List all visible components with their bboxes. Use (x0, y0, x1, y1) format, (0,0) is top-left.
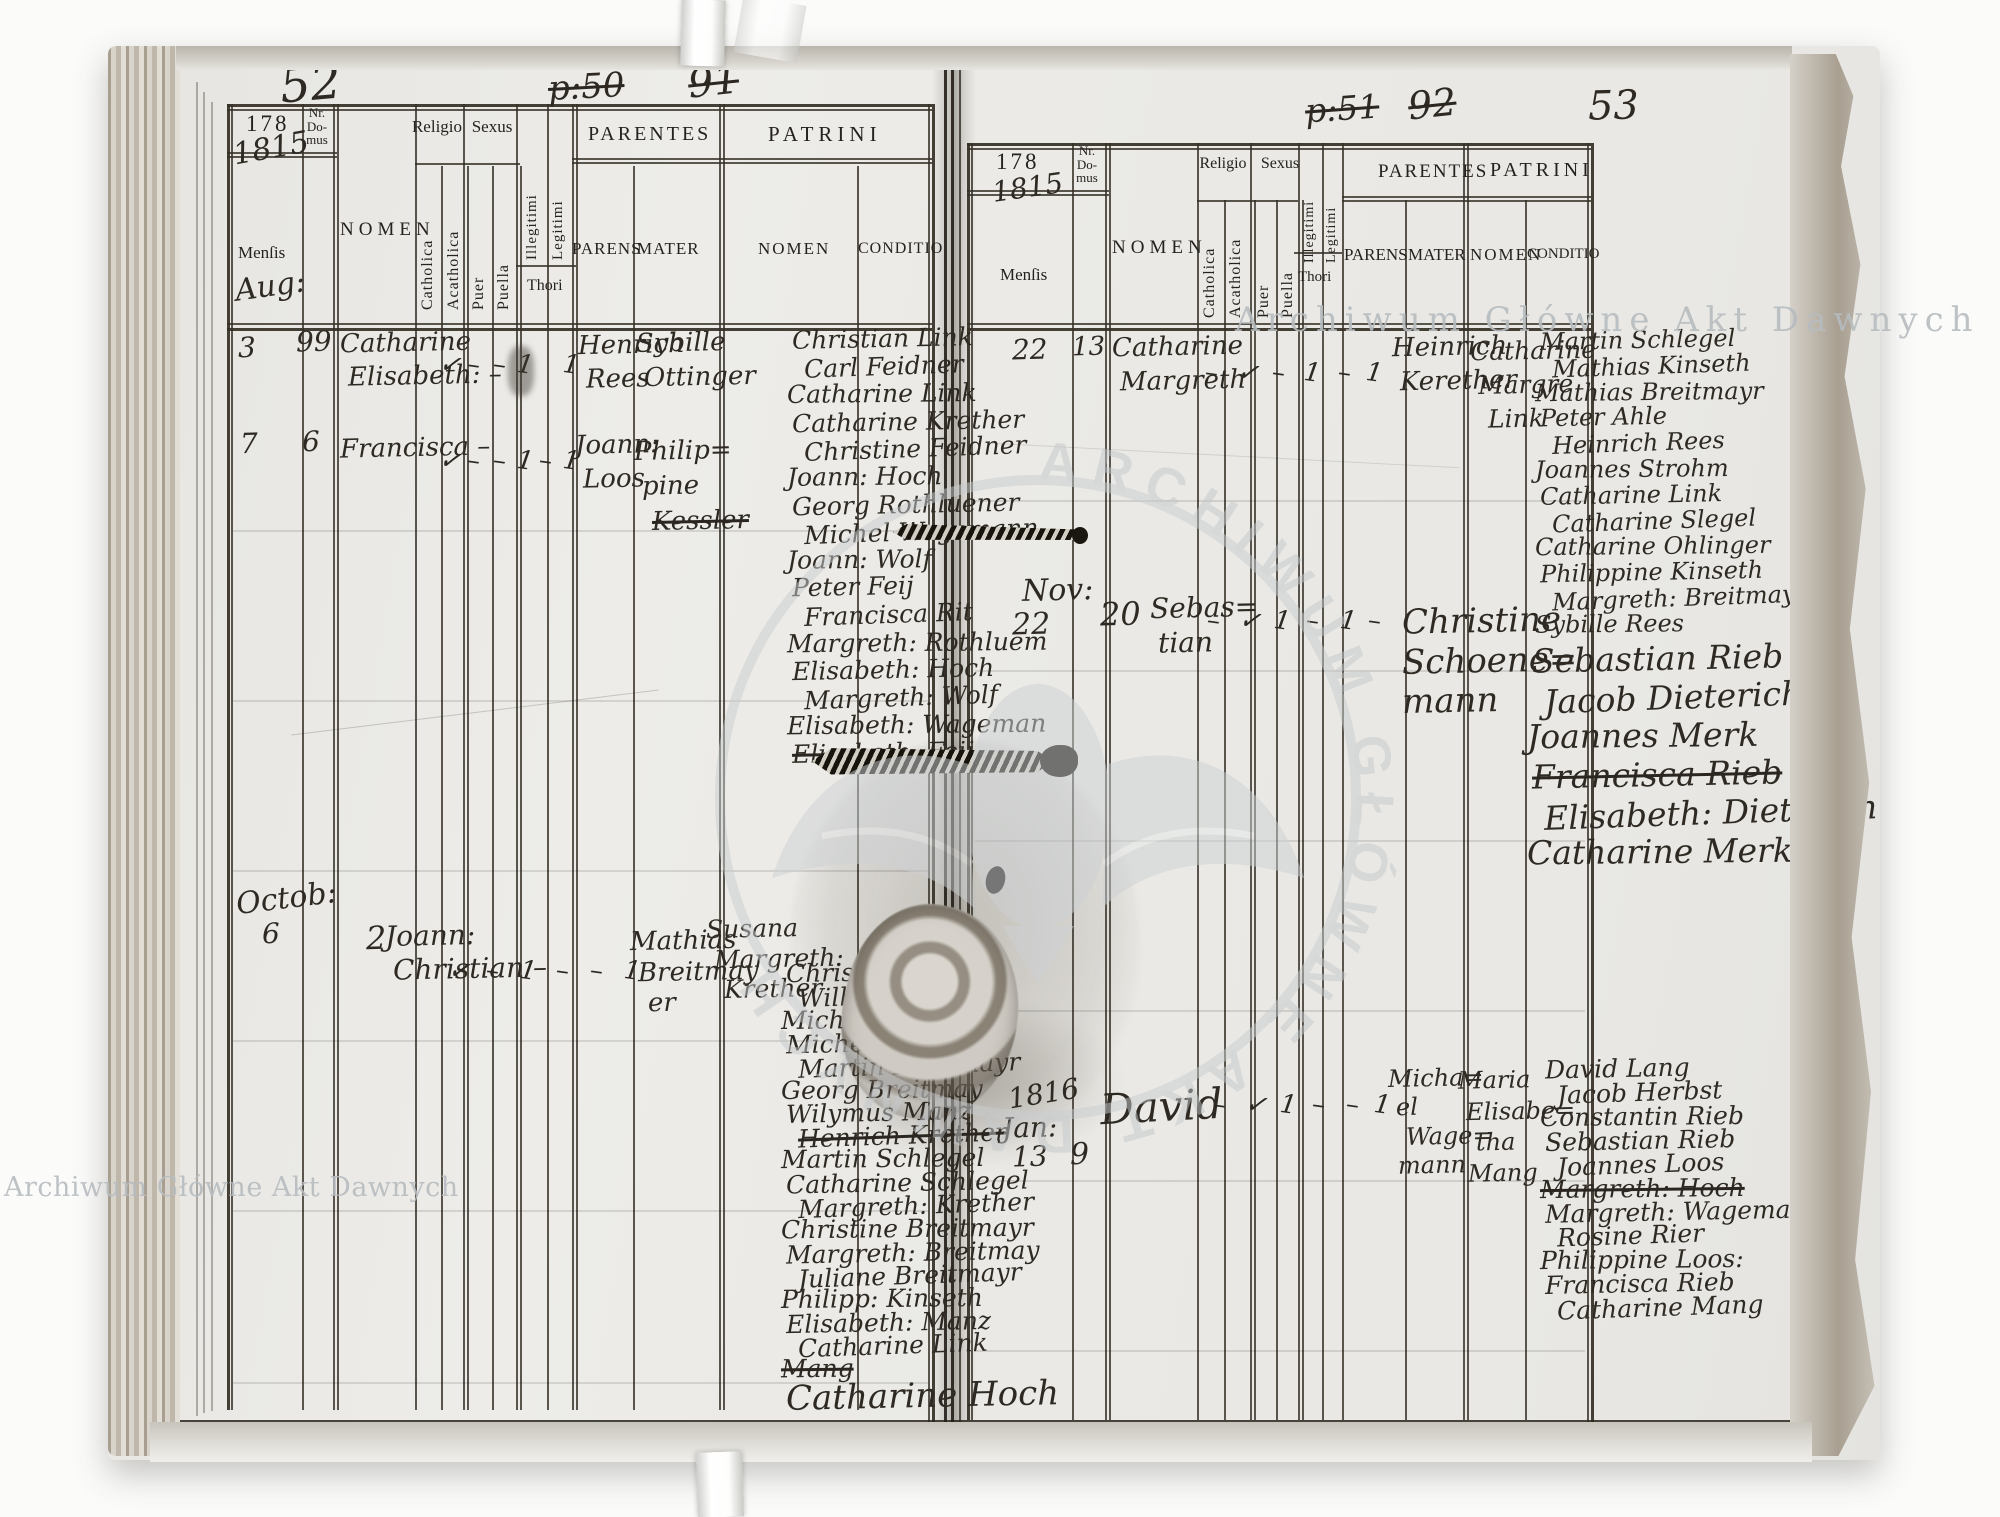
scanner-strap (680, 0, 726, 67)
handwritten-line: Catharine Link (787, 380, 977, 407)
page-number-right: 53 (1587, 85, 1639, 126)
handwritten-line: Francisca Rieb (1532, 755, 1783, 793)
nr-domus-label-left: Nr. Do- mus (300, 106, 334, 147)
handwritten-line: Maria (1458, 1067, 1531, 1093)
book-top-edge (176, 46, 1792, 70)
handwritten-line: Sybille Rees (1535, 611, 1684, 637)
table-line (1197, 200, 1298, 202)
handwritten-line: Christian Link (792, 324, 973, 353)
mark-puer: – (491, 349, 508, 381)
table-line (572, 162, 932, 164)
acatholica-label-left: Acatholica (446, 182, 462, 310)
mater-label-right: MATER (1408, 246, 1466, 264)
handwritten-line: tha (1476, 1130, 1516, 1155)
illegitimi-label-right: Illegitimi (1303, 175, 1317, 263)
nav-note-left: p:50 (547, 68, 625, 106)
handwritten-line: Carl Feidner (804, 351, 964, 382)
table-line (975, 1350, 1585, 1352)
table-line (337, 104, 339, 1410)
handwritten-line: Catharine Link (1540, 481, 1723, 509)
handwritten-line: Peter Ahle (1540, 404, 1667, 431)
archive-watermark-text: Archiwum Główne Akt Dawnych (4, 1172, 459, 1203)
entry-marks: – ✓ – 1 – 1 (1190, 358, 1400, 400)
mark-illegitimi: – (537, 445, 554, 477)
table-line (211, 102, 213, 1411)
handwritten-line: Catharine Mang (1557, 1291, 1764, 1323)
nr-domus-label-right: Nr. Do- mus (1070, 144, 1104, 185)
handwritten-line: Rees (586, 365, 650, 392)
handwritten-line: Jacob Dieterich (1544, 676, 1803, 718)
handwritten-line: Mang (1468, 1160, 1538, 1185)
table-line (333, 104, 335, 1410)
religio-label-right: Religio (1194, 156, 1252, 173)
ink-smudge (508, 346, 534, 396)
patrini-nomen-label-left: NOMEN (758, 240, 830, 258)
thori-label-left: Thori (527, 278, 563, 295)
mark-puella: – (554, 955, 571, 987)
mark-puer: – (1270, 357, 1287, 389)
mensis-label-right: Menſis (1000, 266, 1047, 284)
conditio-label-right: CONDITIO (1527, 247, 1600, 263)
mark-catholica: – (1203, 357, 1220, 389)
catholica-label-right: Catholica (1202, 212, 1218, 318)
entry-day: 3 (238, 334, 257, 362)
handwritten-line: Sebastian Rieb (1532, 639, 1784, 677)
conditio-label-left: CONDITIO (858, 241, 943, 258)
table-line (1342, 200, 1591, 202)
puella-label-left: Puella (496, 248, 512, 310)
legitimi-label-right: Legitimi (1325, 186, 1339, 263)
mark-legitimi: 1 (1364, 357, 1385, 389)
entry-house-nr: 6 (302, 428, 321, 456)
table-line (1342, 196, 1591, 198)
handwritten-line: Catharine Merk (1527, 834, 1793, 870)
table-line (203, 92, 205, 1413)
mark-puella: 1 (1302, 357, 1323, 389)
nav-note-right: p:51 (1304, 89, 1380, 127)
archive-watermark-text: Archiwum Główne Akt Dawnych (1235, 300, 1980, 340)
handwritten-line: Ottinger (644, 363, 756, 391)
mater-label-left: MATER (637, 240, 700, 258)
mark-catholica: ✓ (437, 349, 463, 382)
table-line (463, 104, 465, 1410)
table-line (227, 104, 230, 1410)
scanned-register-page: 52 p:50 91 p:51 92 53 178 1815 Nr. Do- m… (0, 0, 2000, 1517)
handwritten-line: Catharine Hoch (786, 1377, 1060, 1417)
entry-house-nr: 99 (296, 328, 332, 357)
book-bottom-edge (150, 1422, 1812, 1462)
archive-eagle-watermark: ARCHIWUM GŁÓWNE AKT DAWNYCH (622, 406, 1454, 1188)
handwritten-line: Mathias Breitmayr (1535, 378, 1764, 404)
table-line (231, 104, 233, 1410)
table-line (572, 104, 574, 1410)
page-stack-edge (108, 46, 180, 1456)
mark-catholica: ✓ (446, 955, 472, 988)
thori-label-right: Thori (1298, 270, 1331, 286)
table-line (415, 163, 520, 165)
table-line (547, 104, 549, 1410)
scanner-strap (696, 1451, 744, 1517)
mark-acatholica: – (465, 349, 482, 381)
entry-day: 6 (262, 920, 281, 948)
mark-illegitimi: – (588, 955, 605, 987)
table-line (576, 104, 578, 1410)
entry-day: 22 (1012, 336, 1048, 365)
entry-house-nr: 13 (1072, 334, 1106, 361)
entry-day: 7 (240, 430, 259, 458)
scanner-strap (733, 0, 806, 63)
parentes-label-right: PARENTES (1378, 162, 1488, 182)
table-line (302, 104, 304, 1410)
patrini-label-right: PATRINI (1490, 160, 1593, 181)
handwritten-line: Sybille (636, 329, 726, 357)
entry-marks: ✓ – 1 – – 1 (440, 956, 650, 998)
mark-catholica: ✓ (437, 445, 463, 478)
sexus-label-right: Sexus (1256, 156, 1304, 173)
catholica-label-left: Catholica (420, 198, 436, 310)
entry-house-nr: 2 (366, 922, 387, 955)
handwritten-line: Joann: (385, 921, 476, 951)
handwritten-line: Joannes Strohm (1535, 456, 1729, 482)
mark-puella: 1 (515, 445, 536, 477)
illegitimi-label-left: Illegitimi (525, 150, 540, 260)
table-line (415, 104, 417, 1410)
mark-illegitimi: – (1336, 357, 1353, 389)
table-line (572, 158, 932, 160)
legitimi-label-left: Legitimi (551, 163, 566, 260)
handwritten-line: Link (1488, 405, 1544, 431)
mark-acatholica: ✓ (1235, 357, 1261, 390)
religio-label-left: Religio (409, 118, 465, 136)
table-line (967, 148, 1591, 150)
table-line (516, 265, 576, 267)
mark-puer: – (491, 445, 508, 477)
mark-acatholica: – (484, 955, 501, 987)
parentes-label-left: PARENTES (588, 124, 711, 145)
sexus-label-left: Sexus (466, 118, 518, 136)
mark-acatholica: – (465, 445, 482, 477)
mark-puer: 1 (518, 955, 539, 987)
patrini-label-left: PATRINI (768, 123, 882, 145)
table-line (967, 143, 1591, 146)
table-line (516, 104, 518, 1410)
nav-note-right-2: 92 (1406, 83, 1458, 126)
parens-label-right: PARENS (1344, 246, 1408, 264)
mensis-label-left: Menſis (238, 244, 285, 262)
nomen-label-right: NOMEN (1112, 238, 1207, 258)
table-line (196, 82, 198, 1416)
handwritten-line: Joannes Merk (1527, 718, 1759, 753)
parens-label-left: PARENS (572, 240, 642, 258)
puer-label-left: Puer (471, 255, 487, 310)
